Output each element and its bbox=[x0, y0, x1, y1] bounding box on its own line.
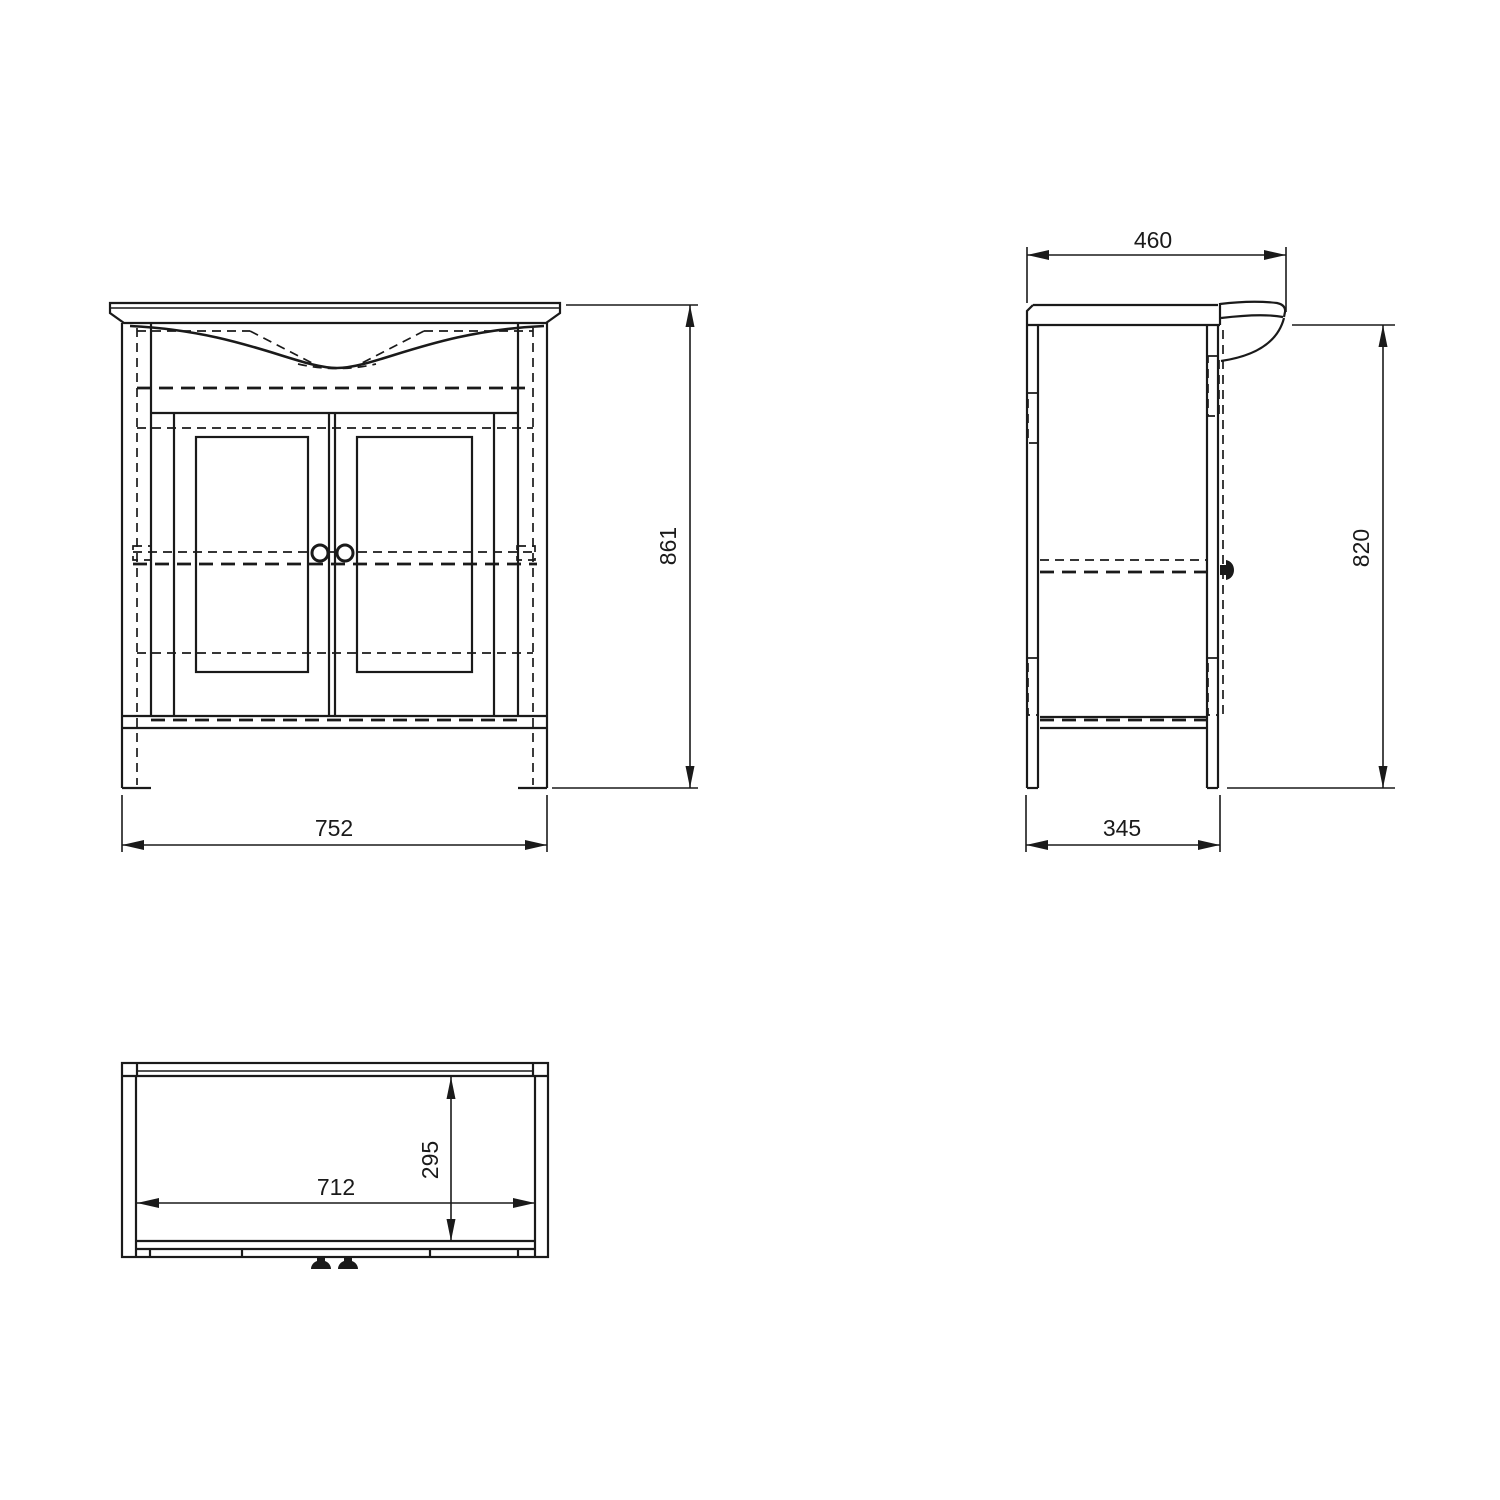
side-door-knob bbox=[1220, 560, 1234, 580]
front-left-door-knob bbox=[312, 545, 328, 561]
plan-left-door-knob bbox=[311, 1257, 331, 1269]
front-right-door-panel bbox=[357, 437, 472, 672]
side-top-depth-dimension: 460 bbox=[1027, 227, 1286, 312]
front-height-label: 861 bbox=[655, 527, 681, 565]
front-width-dimension: 752 bbox=[122, 795, 547, 852]
plan-right-door-knob bbox=[338, 1257, 358, 1269]
side-view: 460 820 345 bbox=[1026, 227, 1395, 852]
plan-inner-width-label: 712 bbox=[317, 1174, 355, 1200]
side-bottom-depth-label: 345 bbox=[1103, 815, 1141, 841]
side-top-depth-label: 460 bbox=[1134, 227, 1172, 253]
plan-inner-depth-label: 295 bbox=[417, 1141, 443, 1179]
side-carcass bbox=[1027, 325, 1234, 788]
front-height-dimension: 861 bbox=[552, 305, 698, 788]
technical-drawing-canvas: 752 861 bbox=[0, 0, 1500, 1500]
side-sink-top bbox=[1027, 302, 1285, 361]
drawing-sheet: 752 861 bbox=[0, 0, 1500, 1500]
side-basin-bowl-curve bbox=[1221, 318, 1284, 361]
plan-inner-width-dimension: 712 bbox=[137, 1174, 535, 1208]
side-bottom-depth-dimension: 345 bbox=[1026, 795, 1220, 852]
front-right-door-knob bbox=[337, 545, 353, 561]
front-width-label: 752 bbox=[315, 815, 353, 841]
plan-inner-depth-dimension: 295 bbox=[417, 1077, 456, 1241]
front-sink-top bbox=[110, 303, 560, 323]
front-view: 752 861 bbox=[110, 303, 698, 852]
front-basin-curve bbox=[130, 326, 544, 369]
side-height-label: 820 bbox=[1348, 529, 1374, 567]
plan-carcass bbox=[122, 1063, 548, 1269]
front-left-door-panel bbox=[196, 437, 308, 672]
side-height-dimension: 820 bbox=[1227, 325, 1395, 788]
plan-view: 712 295 bbox=[122, 1063, 548, 1269]
